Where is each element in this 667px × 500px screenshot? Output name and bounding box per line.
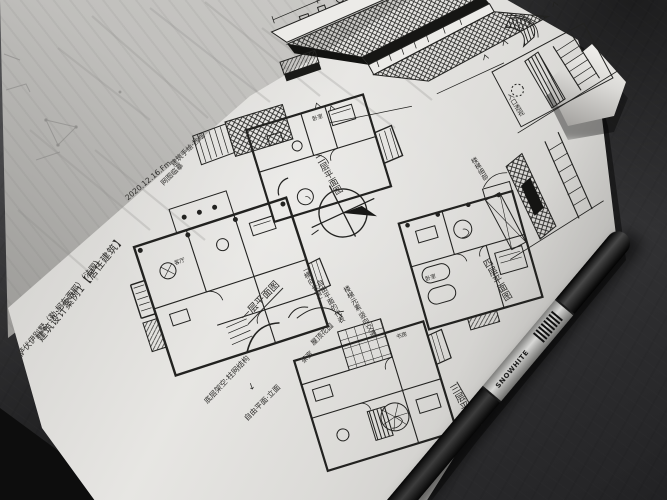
photo-of-sketchbook: 建筑设计案例1【居住建筑】 萨伏伊别墅（勒·柯布西耶）（法国） 2020.12.… — [0, 0, 667, 500]
